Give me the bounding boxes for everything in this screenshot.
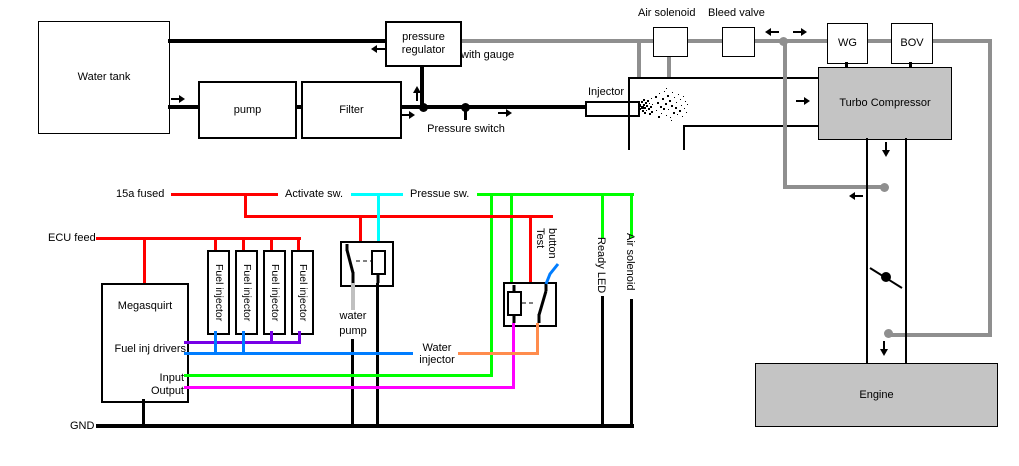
air-line-center-riser [783,39,787,189]
wire-orange-relay2-out [536,323,539,355]
flow-arrow-left-spur-icon [849,191,863,201]
fuel-injector-label-2: Fuel injector [240,264,253,321]
injector-body [585,101,640,117]
filter-box: Filter [301,81,402,139]
wire-black-air-solenoid-gnd [630,299,633,428]
water-injector-relay-internals [503,282,553,323]
wire-red-15a-feed [171,193,278,196]
air-line-solenoid-drop [667,54,671,79]
air-line-right-riser [988,39,992,337]
throttle-dot [881,272,891,282]
wastegate-label: WG [838,37,857,50]
megasquirt-box: Megasquirt Fuel inj drivers Input Output [101,283,189,403]
pressure-regulator-box: pressure regulator [385,21,462,67]
turbo-compressor-label: Turbo Compressor [839,97,930,110]
fuel-injector-label-3: Fuel injector [268,264,281,321]
spray-mist [636,86,698,128]
wire-blue-water-injector [184,352,413,355]
pump-box: pump [198,81,297,139]
wire-gray-water-pump [351,283,355,310]
flow-arrow-down-turbo-out-icon [881,142,891,157]
charge-duct-right [905,138,907,364]
fuel-injector-box-2: Fuel injector [235,250,258,335]
fuel-injector-box-4: Fuel injector [291,250,314,335]
intake-duct-inner-bottom [683,125,818,127]
bov-label: BOV [900,37,923,50]
fuel-injector-box-3: Fuel injector [263,250,286,335]
injector-label: Injector [588,86,624,98]
test-button-label: Test button [534,228,558,276]
flow-arrow-left-regulator-icon [371,44,385,54]
air-line-regulator-drop [637,39,641,79]
input-label: Input [103,372,184,385]
fuel-injector-box-1: Fuel injector [207,250,230,335]
flow-arrow-up-regulator-icon [412,86,422,101]
ready-led-label: Ready LED [595,237,607,297]
flow-arrow-left-bleed-icon [765,27,779,37]
wire-green-bus [477,193,634,196]
engine-box: Engine [755,363,998,427]
air-line-lower-spur [886,333,992,337]
output-label: Output [103,385,184,398]
wire-orange-water-injector [458,352,539,355]
spur-dot-lower [884,329,893,338]
flow-arrow-right-wg-icon [793,27,807,37]
flow-arrow-right-tank-pump-icon [171,94,185,104]
water-tank-label: Water tank [78,71,131,84]
intake-duct-left [628,77,630,150]
wire-black-relay1-coil-gnd [376,283,379,428]
junction-dot-pressure-switch [461,103,470,112]
bov-box: BOV [891,23,933,64]
water-pump-relay-internals [340,241,390,283]
wire-green-air-solenoid [630,193,633,238]
activate-sw-label: Activate sw. [285,188,343,200]
gnd-bus [96,424,634,428]
fuel-injector-label-4: Fuel injector [296,264,309,321]
water-tank-box: Water tank [38,21,170,134]
wire-magenta-output [184,386,515,389]
pipe-tank-to-regulator [168,39,385,43]
wire-blue-inj2-drop [242,331,245,354]
intake-duct-top [628,77,818,79]
pipe-tank-to-pump [168,105,198,109]
air-solenoid-wire-label: Air solenoid [624,233,636,297]
flow-arrow-right-turbo-in-icon [796,96,810,106]
filter-label: Filter [339,104,363,117]
bleed-valve-box [722,27,755,57]
wastegate-box: WG [827,23,868,64]
wire-green-relay2-coil [510,193,513,293]
fuel-injector-label-1: Fuel injector [212,264,225,321]
megasquirt-label: Megasquirt [103,300,187,313]
flow-arrow-right-switch-out-icon [498,108,512,118]
water-injector-label: Water injector [414,342,460,366]
air-line-junction-dot [779,37,788,46]
with-gauge-label: with gauge [461,49,514,61]
air-solenoid-top-label: Air solenoid [638,7,695,19]
wire-black-ready-led-gnd [601,296,604,428]
engine-label: Engine [859,389,893,402]
fuel-inj-drivers-label: Fuel inj drivers [103,343,186,356]
wire-blue-inj1-drop [214,331,217,354]
wire-red-bus [244,215,553,218]
air-line-left-spur [783,185,884,189]
pump-label: pump [234,104,262,117]
junction-dot-regulator [419,103,428,112]
wire-green-ready-led [601,193,604,238]
fused-15a-label: 15a fused [116,188,164,200]
flow-arrow-right-filter-out-icon [401,110,415,120]
bleed-valve-label: Bleed valve [708,7,765,19]
spur-dot-upper [880,183,889,192]
ecu-feed-label: ECU feed [48,232,96,244]
wire-red-relay2-feed [529,215,532,291]
intake-duct-inner-left [683,125,685,150]
wire-green-input-riser [490,193,493,377]
water-pump-label: water pump [336,309,370,339]
wire-green-input [184,374,493,377]
gnd-label: GND [70,420,94,432]
pressure-switch-label: Pressure switch [426,123,506,136]
wire-magenta-relay2-coil [512,323,515,389]
turbo-compressor-box: Turbo Compressor [818,67,952,140]
pressure-regulator-label: pressure regulator [387,31,460,57]
pressue-sw-label: Pressue sw. [410,188,469,200]
air-solenoid-valve-box [653,27,688,57]
flow-arrow-down-engine-in-icon [879,341,889,356]
diagram-canvas: Water tank pump Filter pressure regulato… [0,0,1019,466]
wire-red-megasquirt-drop [143,237,146,285]
charge-duct-left [866,138,868,364]
